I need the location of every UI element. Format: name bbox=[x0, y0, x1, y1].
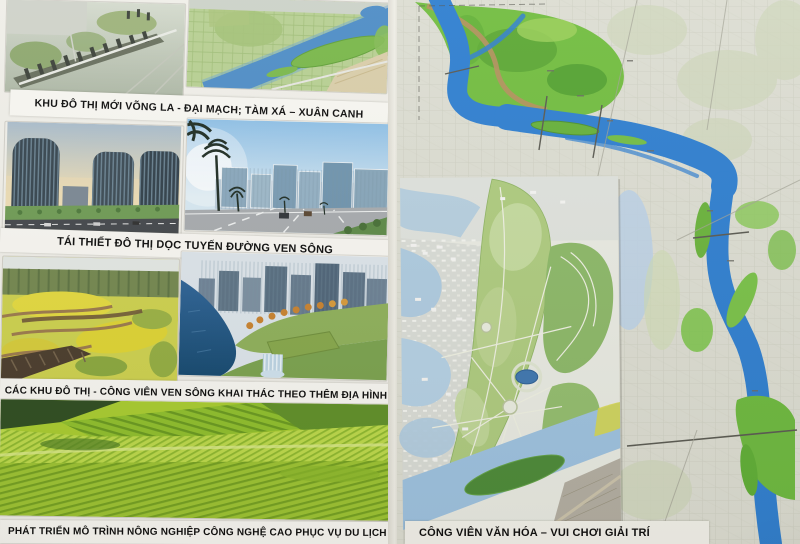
render-riverside-highway bbox=[185, 118, 390, 235]
caption-text: PHÁT TRIỂN MÔ TRÌNH NÔNG NGHIỆP CÔNG NGH… bbox=[8, 526, 387, 539]
vong-la-aerial-art bbox=[5, 0, 185, 96]
park-pond bbox=[516, 370, 538, 384]
park-plaza bbox=[503, 400, 517, 414]
caption-culture-park: CÔNG VIÊN VĂN HÓA – VUI CHƠI GIẢI TRÍ bbox=[405, 521, 709, 544]
render-tam-xa-aerial bbox=[186, 0, 389, 93]
caption-text: CÁC KHU ĐÔ THỊ - CÔNG VIÊN VEN SÔNG KHAI… bbox=[5, 385, 388, 401]
render-boulevard-towers bbox=[3, 122, 184, 235]
caption-text: KHU ĐÔ THỊ MỚI VÕNG LA - ĐẠI MẠCH; TÀM X… bbox=[34, 97, 363, 120]
riverfront-terraces-art bbox=[178, 251, 389, 380]
tam-xa-aerial-art bbox=[186, 0, 389, 93]
hi-tech-farm-art bbox=[0, 399, 391, 520]
master-plan-map bbox=[397, 0, 800, 544]
render-flower-park-terraces bbox=[1, 256, 179, 381]
flower-park-art bbox=[1, 256, 179, 381]
riverside-highway-art bbox=[185, 118, 390, 235]
park-plan-overlay bbox=[397, 176, 623, 530]
caption-agriculture: PHÁT TRIỂN MÔ TRÌNH NÔNG NGHIỆP CÔNG NGH… bbox=[0, 520, 400, 544]
planning-poster-photo: KHU ĐÔ THỊ MỚI VÕNG LA - ĐẠI MẠCH; TÀM X… bbox=[0, 0, 800, 544]
render-vong-la-aerial bbox=[5, 0, 185, 96]
render-riverfront-terraces bbox=[178, 251, 389, 380]
caption-text: CÔNG VIÊN VĂN HÓA – VUI CHƠI GIẢI TRÍ bbox=[419, 527, 650, 539]
render-hi-tech-farm bbox=[0, 399, 391, 520]
boulevard-towers-art bbox=[3, 122, 184, 235]
master-plan-map-art bbox=[397, 0, 800, 544]
